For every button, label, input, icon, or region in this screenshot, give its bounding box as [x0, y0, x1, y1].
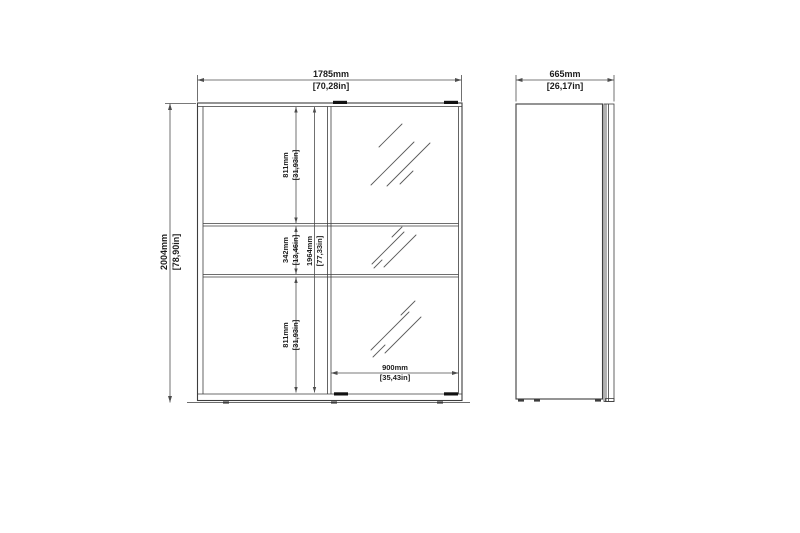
- mirror-hatch-bottom-panel: [371, 301, 421, 357]
- side-view-outline: [516, 104, 614, 402]
- sliding-door-right-edge: [328, 107, 332, 395]
- dim-door-width-in: [35,43in]: [380, 373, 410, 383]
- dim-height-mm: 2004mm: [158, 234, 170, 270]
- drawing-canvas: [0, 0, 800, 533]
- dim-width-in: [70,28in]: [313, 80, 350, 92]
- dim-height-label: 2004mm [78,90in]: [158, 234, 182, 271]
- dim-top-section-label: 811mm [31,93in]: [281, 150, 301, 180]
- dim-interior-height-in: [77,33in]: [315, 236, 325, 266]
- dim-middle-section-mm: 342mm: [281, 237, 291, 263]
- dim-middle-section-in: [13,46in]: [291, 235, 301, 265]
- mirror-hatch-middle-panel: [372, 227, 416, 268]
- dim-bottom-section-in: [31,93in]: [291, 320, 301, 350]
- dim-width-label: 1785mm [70,28in]: [313, 68, 350, 92]
- dim-depth-mm: 665mm: [549, 68, 580, 80]
- dim-interior-height-mm: 1964mm: [304, 236, 314, 266]
- mirror-hatch-top-panel: [371, 124, 430, 186]
- dim-width-mm: 1785mm: [313, 68, 349, 80]
- door-roller-marks: [333, 101, 458, 396]
- dim-door-width-mm: 900mm: [382, 363, 408, 373]
- dim-middle-section-label: 342mm [13,46in]: [281, 235, 301, 265]
- dim-door-width-label: 900mm [35,43in]: [380, 363, 410, 383]
- dim-depth-label: 665mm [26,17in]: [547, 68, 584, 92]
- dim-bottom-section-mm: 811mm: [281, 322, 291, 347]
- dim-top-section-mm: 811mm: [281, 152, 291, 177]
- front-view-outline: [187, 103, 470, 403]
- dim-depth-in: [26,17in]: [547, 80, 584, 92]
- dim-interior-height-label: 1964mm [77,33in]: [304, 236, 324, 266]
- side-door-profile: [604, 104, 614, 402]
- dim-bottom-section-label: 811mm [31,93in]: [281, 320, 301, 350]
- dim-height-in: [78,90in]: [170, 234, 182, 271]
- dim-top-section-in: [31,93in]: [291, 150, 301, 180]
- technical-drawing: 1785mm [70,28in] 665mm [26,17in] 2004mm …: [0, 0, 800, 533]
